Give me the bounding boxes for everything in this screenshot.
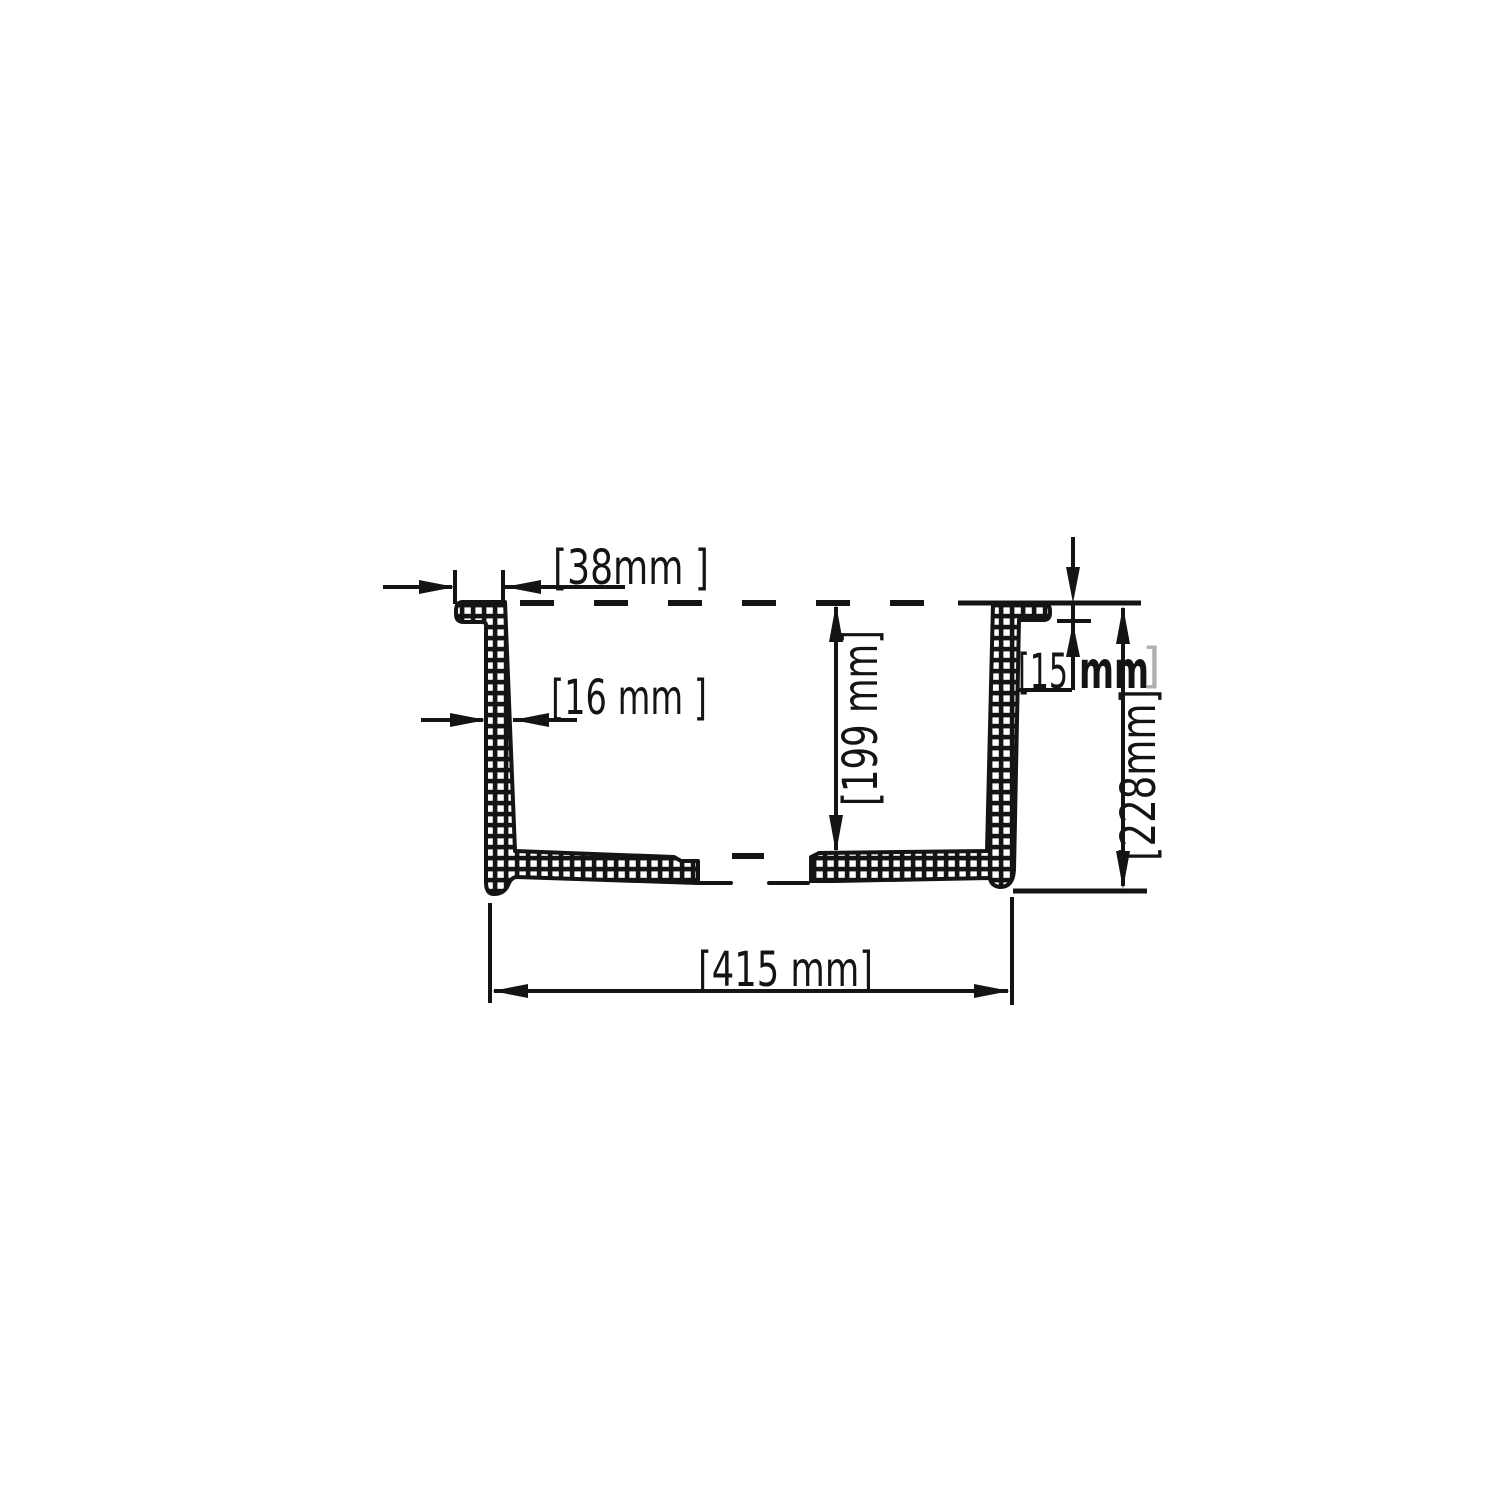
dim-rim-thickness-label-open: [15 — [1018, 644, 1068, 700]
dim-flange-width-label: [38mm ] — [553, 540, 709, 596]
dim-flange-width: [38mm ] — [383, 540, 709, 604]
dim-bowl-depth: [199 mm] — [829, 604, 889, 853]
dim-rim-thickness-label-close: ] — [1142, 638, 1161, 694]
dim-wall-thickness-label: [16 mm ] — [551, 670, 707, 726]
arrow-up-icon — [1116, 606, 1130, 644]
dim-bowl-depth-label: [199 mm] — [833, 630, 889, 806]
dim-overall-height-label: [228mm] — [1111, 689, 1167, 861]
dim-overall-width: [415 mm] — [490, 897, 1012, 1005]
left-wall-section — [456, 602, 698, 894]
dim-overall-width-label: [415 mm] — [698, 942, 873, 998]
section-geometry — [456, 602, 1050, 894]
dim-wall-thickness: [16 mm ] — [421, 670, 707, 727]
arrow-up-icon — [1066, 623, 1080, 657]
sink-cross-section-drawing: [38mm ] [16 mm ] [199 mm] [15 mm — [0, 0, 1500, 1500]
arrow-right-icon — [974, 984, 1010, 998]
arrow-left-icon — [492, 984, 528, 998]
arrow-down-icon — [829, 815, 843, 853]
arrow-down-icon — [1066, 567, 1080, 603]
arrow-right-icon — [450, 713, 486, 727]
technical-drawing-canvas: [38mm ] [16 mm ] [199 mm] [15 mm — [0, 0, 1500, 1500]
arrow-right-icon — [419, 580, 455, 594]
